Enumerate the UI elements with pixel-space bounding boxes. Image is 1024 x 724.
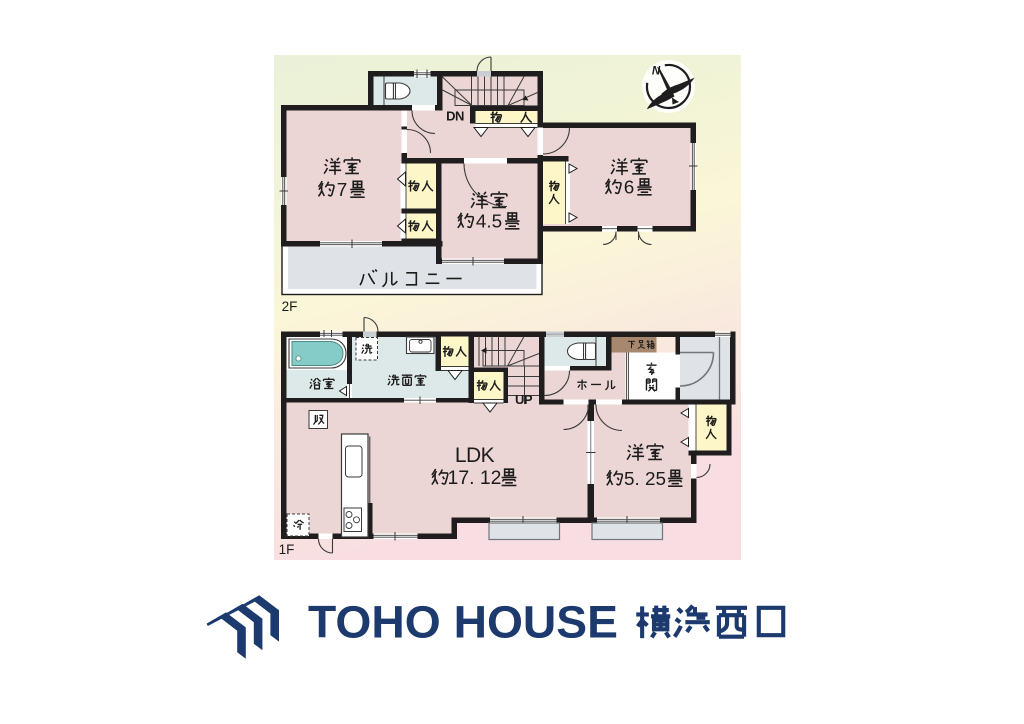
svg-text:TOHO HOUSE: TOHO HOUSE [308,597,618,648]
svg-text:N: N [652,66,661,78]
svg-text:DN: DN [446,109,464,124]
svg-text:6: 6 [624,177,635,198]
svg-text:5. 25: 5. 25 [624,469,666,490]
svg-text:4.5: 4.5 [476,211,502,232]
svg-text:7: 7 [337,180,348,201]
svg-text:LDK: LDK [455,444,495,467]
svg-text:1F: 1F [279,542,295,557]
svg-text:UP: UP [515,392,533,407]
svg-text:17. 12: 17. 12 [448,467,502,489]
svg-text:2F: 2F [282,299,298,314]
